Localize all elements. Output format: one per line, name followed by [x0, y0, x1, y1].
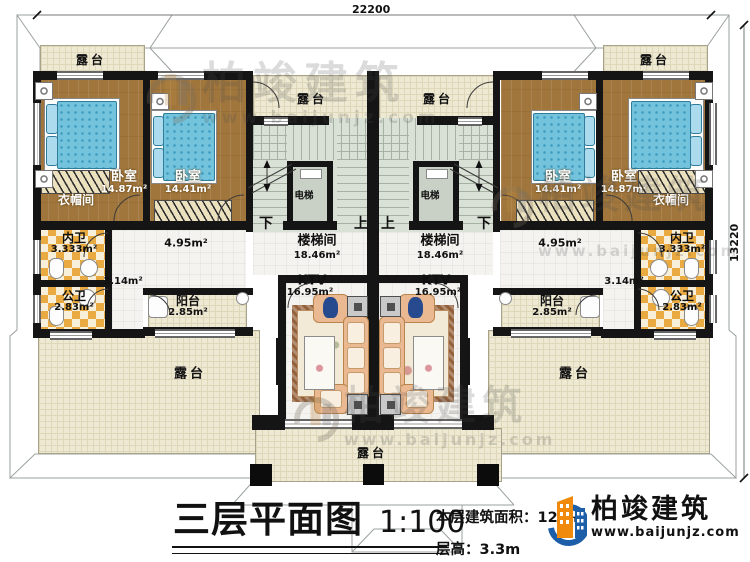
window [33, 103, 41, 165]
terrace-big-right [488, 330, 710, 454]
window [57, 71, 103, 80]
label-cloakroom: 衣帽间 [58, 194, 94, 206]
label-stairwell-area: 18.46m² [294, 251, 340, 261]
label-terrace: 露台 [357, 447, 387, 459]
sofa-cushion [320, 390, 342, 408]
label-ktv: KTV [297, 275, 326, 288]
brand-website: www.baijunjz.com [591, 525, 740, 540]
bed-pillow [153, 148, 164, 178]
label-terrace: 露台 [640, 54, 670, 66]
label-ktv-area: 16.95m² [287, 288, 333, 298]
window [654, 331, 696, 340]
window [511, 329, 591, 338]
tv-right-ktv [460, 338, 470, 385]
label-public-bath-area: 2.83m² [662, 303, 701, 313]
label-corridor-area: 3.14m² [604, 277, 643, 287]
terrace-pillar [477, 464, 499, 486]
label-elevator: 电梯 [294, 191, 313, 201]
ktv-coffee-table [304, 336, 335, 390]
side-table [347, 296, 368, 317]
bed-pillow [584, 116, 595, 146]
label-inner-bath: 内卫 [62, 232, 86, 244]
dimension-right: 13220 [728, 224, 741, 262]
dimension-top: 22200 [352, 3, 390, 16]
elevator-left-door [300, 169, 322, 179]
label-public-bath: 公卫 [62, 290, 86, 302]
bed-pillow [46, 104, 58, 134]
stairs2-left-flight [375, 128, 409, 224]
stairs-left-flight [253, 128, 287, 224]
floor-area-line: 本层建筑面积：12 [436, 506, 558, 527]
label-bedroom-area: 14.41m² [535, 185, 581, 195]
nightstand [35, 82, 53, 100]
nightstand [695, 82, 713, 100]
ktv-coffee-table [413, 336, 444, 390]
label-cloakroom: 衣帽间 [653, 194, 689, 206]
terrace-big-left [38, 330, 260, 454]
label-up: 上 [354, 217, 368, 231]
label-terrace: 露台 [559, 368, 591, 381]
nightstand [695, 170, 713, 188]
bed-mattress [57, 101, 117, 169]
toilet [684, 258, 699, 279]
nightstand [579, 93, 597, 110]
label-balcony-area: 2.85m² [168, 308, 207, 318]
stairs-right-flight [337, 128, 371, 224]
label-terrace: 露台 [297, 93, 327, 105]
sofa-cushion [383, 347, 401, 369]
bed-pillow [690, 104, 702, 134]
corridor-right [603, 288, 634, 335]
label-public-bath-area: 2.83m² [54, 303, 93, 313]
label-inner-bath: 内卫 [670, 232, 694, 244]
label-down: 下 [477, 217, 491, 231]
wall [493, 71, 500, 232]
person-figure [408, 297, 423, 318]
side-table [380, 296, 401, 317]
person-figure [323, 297, 338, 318]
window [285, 419, 352, 429]
label-balcony: 阳台 [176, 295, 200, 307]
label-stairwell: 楼梯间 [420, 235, 459, 248]
title-block: 三层平面图 1:100 [173, 500, 465, 541]
window [458, 117, 482, 126]
wall [636, 280, 713, 287]
brand-name: 柏竣建筑 [591, 494, 740, 525]
window [394, 419, 462, 429]
page-title: 三层平面图 [173, 500, 363, 541]
label-hall-area: 4.95m² [538, 238, 581, 249]
brand-logo-icon [543, 494, 587, 552]
wall [493, 221, 713, 230]
sink [80, 259, 98, 277]
balcony-drain [499, 292, 512, 305]
label-inner-bath-area: 3.333m² [659, 245, 705, 255]
label-bedroom-area: 14.87m² [101, 185, 147, 195]
window [33, 240, 41, 274]
balcony-basin [148, 296, 168, 318]
terrace-pillar [363, 464, 384, 485]
side-table [347, 394, 368, 415]
label-stairwell-area: 18.46m² [417, 251, 463, 261]
sofa-cushion [383, 322, 401, 344]
window [709, 295, 717, 323]
window [50, 331, 92, 340]
floor-plan: 22200 13220 [0, 0, 750, 562]
balcony-basin [580, 296, 600, 318]
label-public-bath: 公卫 [670, 290, 694, 302]
brand-logo: 柏竣建筑 www.baijunjz.com [543, 494, 740, 552]
wall [33, 221, 253, 230]
window [542, 71, 588, 80]
label-bedroom: 卧室 [175, 171, 201, 184]
wardrobe [516, 200, 594, 222]
label-terrace: 露台 [174, 368, 206, 381]
window [158, 71, 204, 80]
window [643, 71, 689, 80]
bed-pillow [584, 148, 595, 178]
sofa-cushion [347, 347, 365, 369]
label-hall-area: 4.95m² [164, 238, 207, 249]
bed-mattress [631, 101, 691, 169]
window [709, 240, 717, 274]
label-ktv: KTV [421, 275, 450, 288]
window [33, 295, 41, 323]
sink [650, 259, 668, 277]
bed-pillow [46, 136, 58, 166]
wall [352, 415, 394, 430]
sofa-cushion [383, 372, 401, 394]
nightstand [35, 170, 53, 188]
label-down: 下 [259, 217, 273, 231]
side-table [380, 394, 401, 415]
corridor-left [112, 288, 143, 335]
wall [462, 415, 494, 430]
sofa-cushion [347, 372, 365, 394]
elevator-right-door [426, 169, 448, 179]
window [709, 103, 717, 165]
wardrobe [154, 200, 232, 222]
floor-area-label: 本层建筑面积： [436, 510, 538, 526]
wall [596, 80, 603, 222]
window [264, 117, 288, 126]
label-balcony: 阳台 [540, 295, 564, 307]
toilet [49, 258, 64, 279]
wall [246, 71, 253, 232]
wall [33, 280, 110, 287]
floor-height-label: 层高： [436, 542, 480, 558]
floor-height-value: 3.3m [480, 542, 521, 558]
label-bedroom-area: 14.41m² [165, 185, 211, 195]
tv-left-ktv [276, 338, 286, 385]
label-elevator: 电梯 [420, 191, 439, 201]
wall [143, 80, 150, 222]
sofa-cushion [406, 390, 428, 408]
label-bedroom-area: 14.87m² [601, 185, 647, 195]
title-underline [172, 546, 447, 554]
label-terrace: 露台 [423, 93, 453, 105]
label-up: 上 [381, 217, 395, 231]
window [155, 329, 235, 338]
terrace-pillar [250, 464, 272, 486]
label-ktv-area: 16.95m² [415, 288, 461, 298]
label-terrace: 露台 [76, 54, 106, 66]
bed-pillow [690, 136, 702, 166]
label-inner-bath-area: 3.333m² [51, 245, 97, 255]
label-bedroom: 卧室 [611, 171, 637, 184]
label-bedroom: 卧室 [111, 171, 137, 184]
label-bedroom: 卧室 [545, 171, 571, 184]
label-corridor-area: 3.14m² [103, 277, 142, 287]
balcony-drain [236, 292, 249, 305]
floor-height-line: 层高：3.3m [436, 538, 520, 559]
sofa-cushion [347, 322, 365, 344]
label-balcony-area: 2.85m² [532, 308, 571, 318]
nightstand [151, 93, 169, 110]
stairs2-right-flight [459, 128, 493, 224]
wall [252, 415, 285, 430]
bed-pillow [153, 116, 164, 146]
label-stairwell: 楼梯间 [297, 235, 336, 248]
